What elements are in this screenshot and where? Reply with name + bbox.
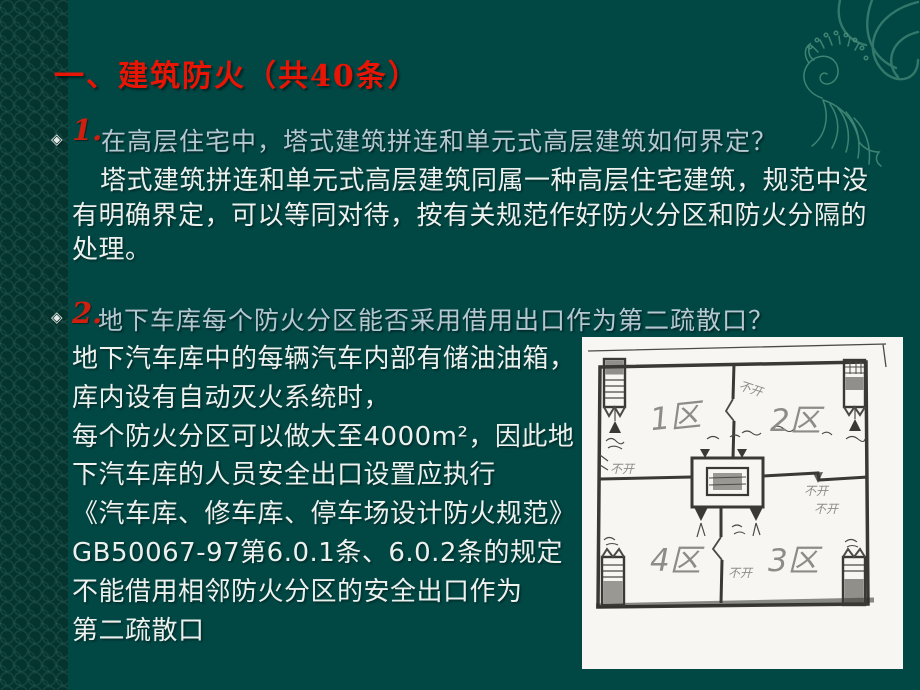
answer-1-line: 处理。 [72,233,906,268]
question-1-text: 在高层住宅中，塔式建筑拼连和单元式高层建筑如何界定？ [101,122,777,158]
floor-plan-image: 1区 2区 3区 4区 不开 不开 不开 不开 不开 [582,337,903,669]
no-open-label: 不开 [804,484,830,498]
answer-1-line: 有明确界定，可以等同对待，按有关规范作好防火分区和防火分隔的 [72,199,906,234]
question-2-text: 地下车库每个防火分区能否采用借用出口作为第二疏散口？ [98,301,774,337]
no-open-label: 不开 [814,502,840,516]
zone-4-label: 4区 [650,543,705,579]
no-open-label: 不开 [728,566,754,580]
zone-2-label: 2区 [770,403,825,439]
answer-1-line: 塔式建筑拼连和单元式高层建筑同属一种高层住宅建筑，规范中没 [72,164,906,199]
diamond-bullet-icon: ◈ [51,308,63,326]
zone-1-label: 1区 [648,397,706,439]
question-1-number: 1. [72,113,102,147]
phoenix-ornament-icon [760,0,920,170]
answer-1-text: 塔式建筑拼连和单元式高层建筑同属一种高层住宅建筑，规范中没 有明确界定，可以等同… [72,164,906,268]
slide-title: 一、建筑防火（共40条） [54,51,420,95]
zone-3-label: 3区 [768,543,823,579]
presentation-slide: 一、建筑防火（共40条） ◈ 1. 在高层住宅中，塔式建筑拼连和单元式高层建筑如… [0,0,920,690]
left-decorative-strip [0,0,68,690]
diamond-bullet-icon: ◈ [51,130,63,148]
no-open-label: 不开 [610,462,636,476]
